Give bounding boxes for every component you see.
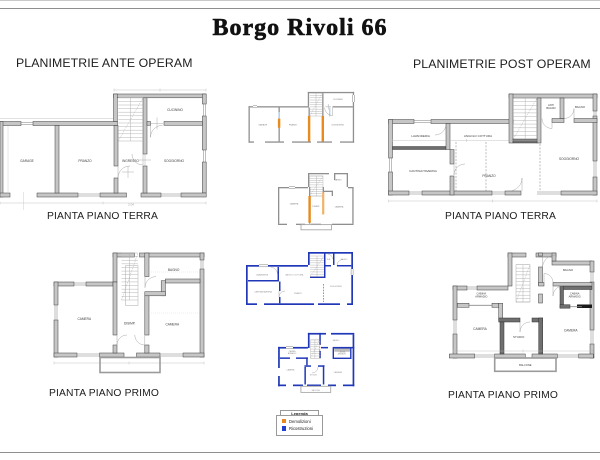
svg-text:ARMADIO: ARMADIO [475,295,487,299]
svg-text:CAMERA: CAMERA [290,203,299,206]
svg-text:GARAGE: GARAGE [20,159,34,163]
svg-text:SOGGIORNO: SOGGIORNO [164,159,185,163]
svg-text:ARMADIO: ARMADIO [338,353,347,356]
svg-text:SOGGIORNO: SOGGIORNO [559,157,580,161]
svg-text:BAGNO: BAGNO [333,339,340,342]
svg-text:CAMERA: CAMERA [77,317,92,321]
svg-text:BAGNO: BAGNO [334,179,342,182]
svg-text:PRANZO: PRANZO [289,124,298,127]
svg-text:LAVANDERIA: LAVANDERIA [256,273,268,276]
svg-text:GARAGE: GARAGE [259,124,268,127]
svg-text:BAGNO: BAGNO [341,258,348,261]
svg-text:ARMADIO: ARMADIO [569,295,581,299]
svg-text:CAMERA: CAMERA [286,369,295,372]
svg-text:INGRESSO: INGRESSO [122,159,139,163]
svg-text:PRANZO: PRANZO [78,159,92,163]
svg-text:CUCININO: CUCININO [167,108,183,112]
svg-text:BALCONE: BALCONE [519,363,532,367]
svg-text:LAVANDERIA: LAVANDERIA [411,134,430,138]
svg-text:DISIMP.: DISIMP. [312,206,320,208]
svg-text:ANGOLO COTTURA: ANGOLO COTTURA [286,273,304,276]
svg-text:BALCONE: BALCONE [312,389,321,392]
svg-text:CAMERA: CAMERA [473,327,488,331]
svg-text:SOGGIORNO: SOGGIORNO [330,286,342,288]
svg-text:2.04: 2.04 [128,203,134,207]
svg-text:BAGNO: BAGNO [168,268,180,272]
svg-text:STUDIO: STUDIO [513,335,525,339]
svg-text:DISIMP.: DISIMP. [124,322,136,326]
svg-text:ARMADIO: ARMADIO [288,352,297,355]
svg-text:BAGNO: BAGNO [563,268,574,272]
svg-text:PRANZO: PRANZO [294,292,302,295]
svg-text:STUDIO: STUDIO [310,374,318,376]
svg-text:CAMERA: CAMERA [564,329,579,333]
svg-text:CANTINA/TAVERNA: CANTINA/TAVERNA [254,290,272,293]
svg-text:CAMERA: CAMERA [165,323,180,327]
svg-text:CANTINA/TAVERNA: CANTINA/TAVERNA [409,169,437,173]
svg-text:BAGNO: BAGNO [546,106,555,110]
svg-text:PRANZO: PRANZO [482,174,496,178]
svg-text:A.B.: A.B. [327,258,331,261]
svg-text:SOGGIORNO: SOGGIORNO [332,125,345,127]
svg-text:CAMERA: CAMERA [335,206,344,209]
svg-text:BAGNO: BAGNO [575,105,586,109]
svg-text:CAMERA: CAMERA [334,371,343,374]
svg-text:ANGOLO COTTURA: ANGOLO COTTURA [464,134,492,138]
svg-text:CUCININO: CUCININO [333,99,343,101]
